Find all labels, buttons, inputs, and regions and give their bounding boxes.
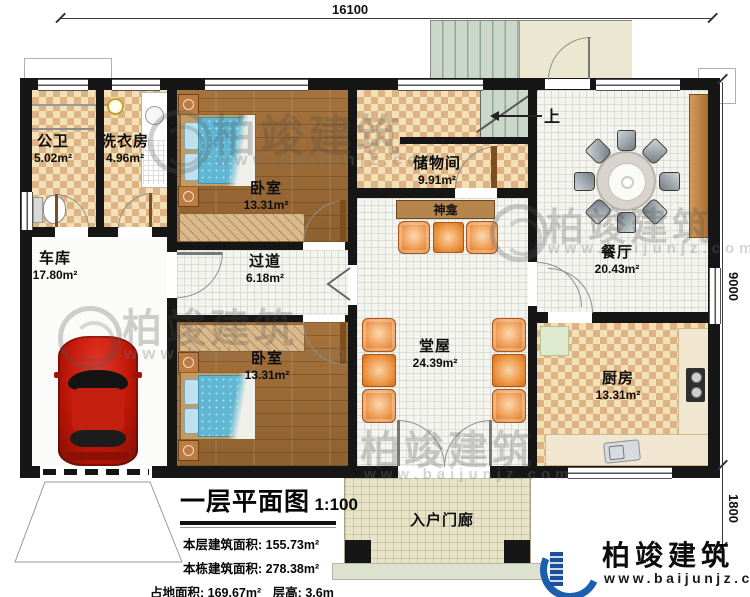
bathroom-door-gap (55, 227, 88, 237)
laundry-door-gap (118, 227, 152, 237)
shrine-chair-left (398, 221, 430, 254)
laundry-basin (145, 106, 164, 125)
plan-scale: 1:100 (314, 495, 357, 514)
burner (691, 387, 702, 398)
shrine-shelf: 神龛 (396, 200, 495, 219)
dimension-right-label: 9000 (726, 272, 741, 301)
brand-logo-icon (540, 536, 594, 588)
burner (691, 372, 702, 383)
pillow (184, 122, 199, 150)
area-row-value: 278.38m² (266, 562, 320, 576)
wall-stair-bar (400, 137, 537, 144)
title-underline-thin (180, 527, 336, 528)
bathroom-divider-line (30, 128, 94, 130)
kitchen-door-gap (548, 312, 592, 323)
storage-door-gap (455, 188, 497, 198)
dining-chair (617, 130, 636, 151)
laundry-window (112, 79, 160, 91)
brand-website: www.baijunjz.com (604, 570, 750, 586)
toilet-tank (33, 197, 43, 223)
room-name: 过道 (205, 253, 325, 271)
blanket (227, 373, 255, 439)
bedroom1-nightstand-top (178, 94, 199, 115)
stair-landing-door-leaf (588, 37, 590, 79)
dimension-line-top (60, 18, 713, 19)
dimension-top-label: 16100 (332, 2, 368, 17)
garage-door-dashed (43, 469, 149, 475)
exterior-stairs-treads (431, 21, 519, 79)
passage-chevron (322, 264, 356, 304)
porch-step (332, 563, 546, 580)
shrine-table (433, 222, 464, 253)
area-row-label: 本栋建筑面积: (183, 562, 262, 576)
garage-door-gap-corridor (167, 252, 177, 298)
floor-plan-canvas: 上 神龛 (0, 0, 750, 597)
dimension-line-right (722, 82, 723, 470)
pillow (184, 408, 199, 434)
dining-cabinet (689, 94, 710, 238)
brand-logo: 柏竣建筑 www.baijunjz.com (540, 534, 745, 592)
dining-chair (659, 172, 680, 191)
dining-window (596, 79, 680, 91)
stair-up-label: 上 (544, 103, 560, 127)
bathroom-side-window (21, 192, 33, 230)
bedroom2-label: 卧室 13.31m² (207, 350, 327, 382)
dining-door-gap (528, 262, 537, 306)
bedroom2-wardrobe (179, 324, 305, 352)
wall-kitchen-top-r (592, 312, 720, 323)
room-name: 堂屋 (375, 338, 495, 356)
room-area: 20.43m² (557, 262, 677, 276)
brand-name: 柏竣建筑 (602, 534, 734, 574)
kitchen-fridge (540, 326, 569, 356)
car (58, 336, 138, 466)
bedroom1-door-leaf (340, 200, 346, 242)
entrance-right-leaf (489, 420, 492, 466)
wall-dining-left-b (528, 198, 537, 262)
storage-window (398, 79, 483, 91)
wall-center-lower (348, 305, 357, 466)
room-name: 餐厅 (557, 244, 677, 262)
room-name: 洗衣房 (87, 133, 163, 151)
area-row-value: 155.73m² (266, 538, 320, 552)
room-name: 公卫 (15, 133, 91, 151)
car-mirror-left (54, 372, 63, 378)
room-name: 储物间 (377, 155, 497, 173)
bedroom1-door-gap (303, 242, 345, 250)
car-rear (66, 452, 130, 460)
wall-garage-top (20, 227, 177, 237)
bedroom2-door-leaf (340, 322, 346, 364)
wall-dining-left-a (528, 90, 537, 188)
title-underline-thick (180, 521, 336, 525)
porch-stub-right (504, 540, 530, 563)
dining-table-center (621, 176, 634, 189)
sink-icon (603, 439, 641, 464)
dining-chair (574, 172, 595, 191)
bedroom2-nightstand-bottom (178, 440, 199, 461)
bedroom1-wardrobe (179, 213, 305, 242)
area-row-label: 本层建筑面积: (183, 538, 262, 552)
hall-label: 堂屋 24.39m² (375, 338, 495, 370)
bedroom1-nightstand-bottom (178, 186, 199, 207)
room-name: 卧室 (207, 350, 327, 368)
shrine-label: 神龛 (433, 203, 457, 217)
wall-kitchen-top-l (537, 312, 548, 323)
plan-title: 一层平面图 (180, 488, 310, 516)
room-area: 9.91m² (377, 173, 497, 187)
bedroom1-bed (180, 114, 256, 187)
car-mirror-right (133, 372, 142, 378)
room-area: 13.31m² (207, 368, 327, 382)
bedroom2-door-gap (303, 315, 345, 322)
bathroom-door-leaf (55, 194, 58, 227)
stair-up-arrowhead (490, 111, 499, 121)
entrance-door-gap (398, 466, 490, 478)
kitchen-window (568, 467, 672, 479)
bedroom1-label: 卧室 13.31m² (206, 180, 326, 212)
room-area: 5.02m² (15, 151, 91, 165)
room-area: 17.80m² (10, 268, 100, 282)
garage-label: 车库 17.80m² (10, 250, 100, 282)
pillow (184, 379, 199, 405)
dining-chair (617, 212, 636, 233)
laundry-door-leaf (149, 193, 152, 227)
porch-label: 入户门廊 (382, 512, 502, 530)
car-rear-window (70, 430, 126, 447)
entrance-left-leaf (397, 420, 400, 466)
area-row-label2: 层高: (273, 586, 302, 597)
room-name: 入户门廊 (382, 512, 502, 530)
shrine-chair-right (466, 221, 498, 254)
dining-label: 餐厅 20.43m² (557, 244, 677, 276)
shower-head-icon (107, 98, 124, 115)
hall-table (492, 354, 526, 387)
room-area: 13.31m² (558, 388, 678, 402)
area-row-value2: 3.6m (305, 586, 334, 597)
dining-side-window (709, 268, 721, 324)
room-name: 卧室 (206, 180, 326, 198)
hall-chair (492, 389, 526, 423)
area-row-value: 169.67m² (208, 586, 262, 597)
dimension-porch-label: 1800 (726, 494, 741, 523)
bedroom1-window (205, 79, 308, 91)
room-area: 24.39m² (375, 356, 495, 370)
room-name: 厨房 (558, 370, 678, 388)
pillow (184, 153, 199, 181)
bedroom2-nightstand-top (178, 352, 199, 373)
wall-storage-bottom-r (497, 188, 537, 198)
stair-landing-door-gap (545, 79, 590, 89)
wall-storage-bottom-l (348, 188, 455, 198)
hall-chair (362, 389, 396, 423)
room-area: 13.31m² (206, 198, 326, 212)
room-name: 车库 (10, 250, 100, 268)
blanket (227, 115, 255, 186)
stair-up-arrow (497, 115, 542, 117)
storage-label: 储物间 9.91m² (377, 155, 497, 187)
room-area: 6.18m² (205, 271, 325, 285)
area-row-label: 占地面积: (150, 586, 204, 597)
kitchen-label: 厨房 13.31m² (558, 370, 678, 402)
logo-tower-orange (562, 537, 584, 583)
car-roof (72, 388, 124, 432)
basin (608, 445, 624, 460)
stove-icon (686, 368, 705, 402)
hall-chair (492, 318, 526, 352)
laundry-label: 洗衣房 4.96m² (87, 133, 163, 165)
wall-kitchen-left (528, 306, 537, 466)
hallway-label: 过道 6.18m² (205, 253, 325, 285)
room-area: 4.96m² (87, 151, 163, 165)
bathroom-window (38, 79, 88, 91)
exterior-stairs (430, 20, 632, 80)
bathroom-label: 公卫 5.02m² (15, 133, 91, 165)
title-block: 一层平面图 1:100 本层建筑面积: 155.73m² 本栋建筑面积: 278… (150, 482, 350, 597)
wall-center-upper (348, 90, 357, 265)
logo-tower-blue (548, 550, 565, 588)
